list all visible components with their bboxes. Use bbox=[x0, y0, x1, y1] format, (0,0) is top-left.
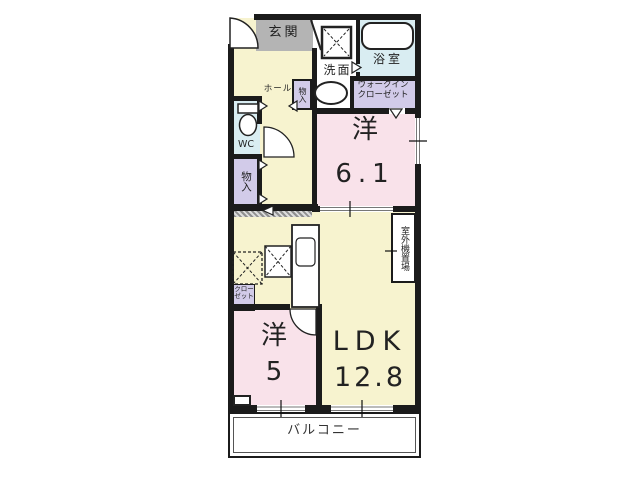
genkan-label: 玄関 bbox=[256, 26, 313, 41]
western61-label: 洋 bbox=[315, 116, 415, 146]
washroom-label: 洗面 bbox=[313, 64, 362, 78]
ldk-label: LDK bbox=[320, 326, 420, 357]
balcony-label: バルコニー bbox=[228, 424, 421, 439]
western61-size: 6.1 bbox=[315, 160, 415, 190]
western5-label: 洋 bbox=[232, 322, 316, 352]
wc-door-arc-icon bbox=[264, 127, 294, 157]
bathroom-label: 浴室 bbox=[362, 53, 414, 67]
toilet-bowl-icon bbox=[240, 115, 257, 136]
bathtub-icon bbox=[362, 23, 413, 49]
entrance-door-arc-icon bbox=[230, 18, 258, 48]
western5-size: 5 bbox=[232, 358, 316, 388]
storage-top-label: 物入 bbox=[293, 82, 311, 108]
floorplan-page: 玄関 ホール 洗面 浴室 ウォークイン クローゼット WC 物入 物入 洋 6.… bbox=[0, 0, 640, 480]
outdoor-unit-label: 室外機置場 bbox=[393, 216, 414, 280]
door-marker-icon bbox=[259, 101, 267, 111]
wc-label: WC bbox=[232, 140, 260, 151]
step-notch bbox=[234, 396, 250, 405]
toilet-tank-icon bbox=[238, 104, 258, 113]
sink-icon bbox=[315, 82, 347, 104]
washing-machine-pan-icon bbox=[322, 27, 351, 58]
storage-left-label: 物入 bbox=[234, 163, 258, 199]
kitchen-sink-icon bbox=[296, 238, 315, 266]
door-marker-icon bbox=[263, 206, 273, 215]
hall-label: ホール bbox=[261, 85, 295, 95]
door-marker-icon bbox=[259, 194, 267, 204]
appliance-space-icon bbox=[233, 252, 262, 284]
appliance-space-icon bbox=[265, 246, 291, 277]
small-closet-label: クロー ゼット bbox=[233, 286, 255, 301]
door-marker-icon bbox=[259, 160, 267, 170]
ldk-size: 12.8 bbox=[320, 362, 420, 393]
walkin-closet-label: ウォークイン クローゼット bbox=[350, 81, 416, 101]
